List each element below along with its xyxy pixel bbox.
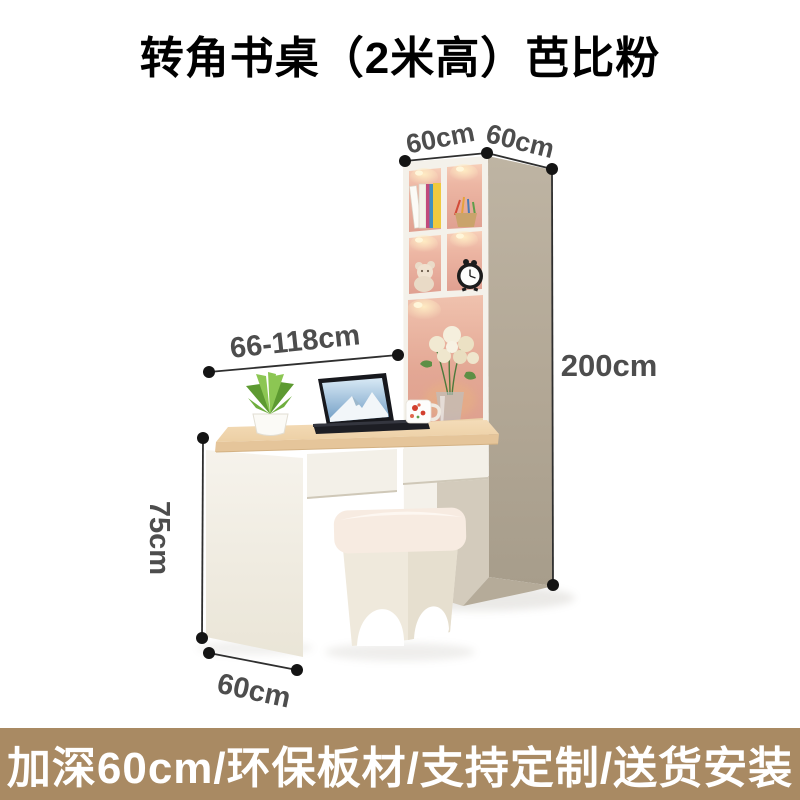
label-total-height: 200cm	[561, 348, 658, 383]
label-desk-length-range: 66-118cm	[228, 319, 361, 364]
corner-desk-illustration	[197, 156, 575, 661]
dim-line-desk-height	[202, 438, 203, 638]
promo-banner: 加深60cm/环保板材/支持定制/送货安装	[0, 728, 800, 800]
label-desk-height: 75cm	[143, 501, 175, 575]
dim-line-height	[552, 169, 553, 585]
cabinet-side-panel	[488, 156, 553, 586]
desk-left-panel	[206, 450, 303, 657]
stool	[333, 507, 466, 646]
product-scene: 60cm 60cm 200cm 66-118cm 75cm 60cm	[0, 0, 800, 800]
books	[409, 183, 441, 228]
label-cabinet-width: 60cm	[404, 117, 478, 160]
label-desk-depth: 60cm	[214, 668, 293, 715]
promo-banner-text: 加深60cm/环保板材/支持定制/送货安装	[7, 732, 793, 796]
label-cabinet-depth: 60cm	[483, 118, 557, 164]
product-card: 转角书桌（2米高）芭比粉	[0, 0, 800, 800]
